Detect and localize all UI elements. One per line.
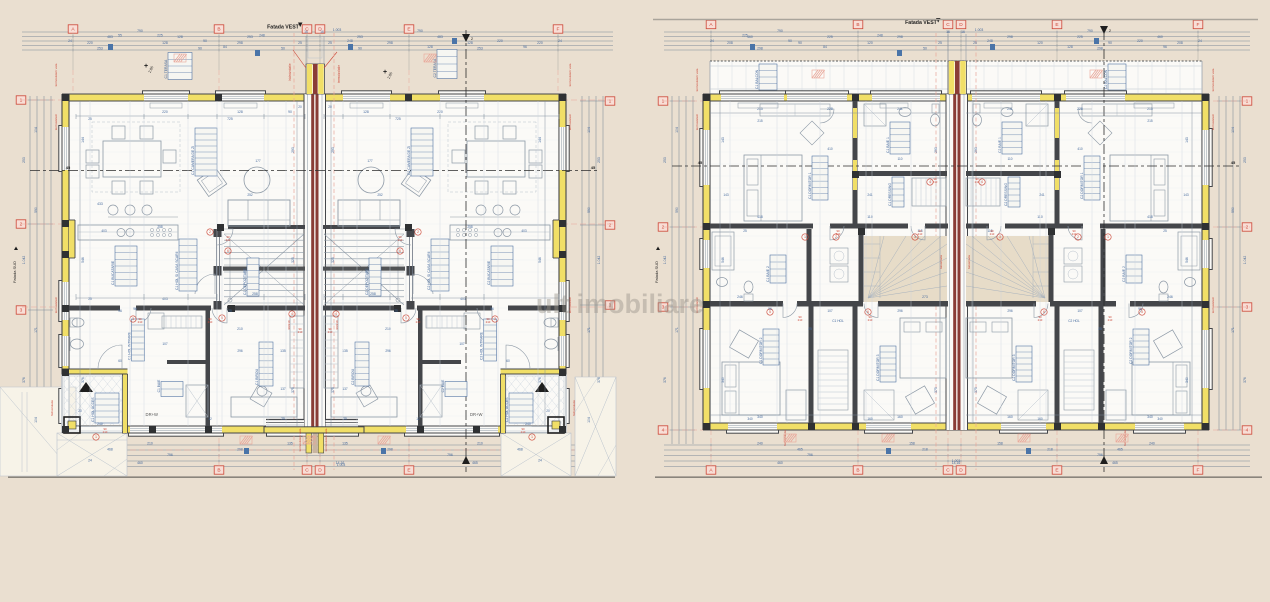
svg-text:376: 376 [663,377,667,383]
svg-text:20: 20 [546,409,550,413]
svg-text:375: 375 [331,387,335,393]
svg-text:418: 418 [1147,215,1153,219]
svg-text:C2 DORMITOR 3: C2 DORMITOR 3 [1012,354,1016,381]
svg-text:210: 210 [975,180,980,184]
svg-text:225: 225 [742,34,748,38]
svg-text:1.042: 1.042 [22,256,26,265]
svg-text:25: 25 [88,297,92,301]
svg-text:210: 210 [918,232,923,236]
svg-text:termosistem vata: termosistem vata [695,68,699,91]
svg-text:340: 340 [1157,417,1163,421]
svg-text:796: 796 [447,453,453,457]
svg-text:210: 210 [477,442,483,446]
svg-text:1.042: 1.042 [1243,256,1247,265]
svg-text:220: 220 [537,41,543,45]
svg-text:225: 225 [1077,35,1083,39]
svg-text:293: 293 [291,147,295,153]
svg-text:210: 210 [147,442,153,446]
svg-text:253: 253 [97,47,103,51]
svg-text:25: 25 [1098,327,1102,331]
svg-text:hidroizolatie: hidroizolatie [783,430,787,446]
svg-text:6: 6 [227,249,229,253]
svg-text:210: 210 [836,232,841,236]
svg-text:158: 158 [909,442,915,446]
svg-text:90: 90 [788,39,792,43]
svg-text:128: 128 [237,110,243,114]
svg-text:84: 84 [823,45,827,49]
svg-text:C2 HOL: C2 HOL [1068,319,1080,323]
svg-text:2: 2 [1077,235,1079,239]
svg-text:376: 376 [597,377,601,383]
svg-text:590: 590 [587,207,591,213]
svg-text:C2 HOL INTRARE: C2 HOL INTRARE [479,331,483,360]
svg-text:25: 25 [938,41,942,45]
svg-text:215: 215 [757,107,763,111]
svg-text:210: 210 [1108,318,1113,322]
svg-text:90: 90 [358,47,362,51]
svg-text:135: 135 [342,442,348,446]
svg-text:546: 546 [721,257,725,263]
svg-text:210: 210 [398,238,403,242]
svg-text:465: 465 [472,461,478,465]
svg-text:107: 107 [459,342,465,346]
svg-text:460: 460 [777,461,783,465]
svg-text:293: 293 [974,147,978,153]
svg-text:hidroizolatie: hidroizolatie [50,400,54,416]
svg-text:376: 376 [22,377,26,383]
svg-text:104: 104 [587,127,591,133]
svg-text:137: 137 [280,387,286,391]
svg-text:465: 465 [1112,461,1118,465]
svg-text:termosistem: termosistem [54,113,58,130]
svg-text:468: 468 [517,448,523,452]
svg-text:375: 375 [934,387,938,393]
svg-text:143: 143 [721,137,725,143]
svg-text:6: 6 [1043,310,1045,314]
svg-text:24: 24 [68,39,72,43]
svg-text:253: 253 [477,47,483,51]
svg-text:340: 340 [1147,415,1153,419]
svg-text:128: 128 [162,41,168,45]
svg-text:14,16: 14,16 [952,461,961,465]
svg-text:128: 128 [467,41,473,45]
svg-text:210: 210 [521,430,526,434]
svg-text:C1 BIROU: C1 BIROU [255,368,259,385]
svg-text:90: 90 [1108,41,1112,45]
svg-text:128: 128 [1067,45,1073,49]
svg-text:C1 HOL INTRARE: C1 HOL INTRARE [127,331,131,360]
svg-text:F: F [1197,468,1200,474]
svg-text:253: 253 [1243,157,1247,163]
svg-text:258: 258 [157,225,163,229]
svg-text:F: F [1197,22,1200,28]
svg-text:96: 96 [523,45,527,49]
svg-text:298: 298 [1007,35,1013,39]
svg-text:215: 215 [1147,107,1153,111]
svg-text:2: 2 [417,230,419,234]
svg-text:158: 158 [997,442,1003,446]
svg-text:C1 TERASA: C1 TERASA [164,59,168,79]
svg-text:228: 228 [1077,107,1083,111]
svg-text:253: 253 [357,35,363,39]
svg-text:C1 HOL ACCES: C1 HOL ACCES [91,397,95,422]
svg-text:termosistem: termosistem [1211,296,1215,313]
svg-text:253: 253 [597,157,601,163]
svg-text:210: 210 [486,320,491,324]
svg-text:143: 143 [1183,193,1189,197]
svg-text:143: 143 [723,193,729,197]
svg-text:B: B [217,27,220,33]
svg-text:balustrada: balustrada [967,255,971,269]
svg-text:25: 25 [973,41,977,45]
svg-text:171: 171 [587,327,591,333]
svg-text:120: 120 [867,41,873,45]
svg-text:1: 1 [609,99,612,105]
svg-text:1: 1 [804,235,806,239]
svg-text:C1 BALCON: C1 BALCON [755,69,759,89]
svg-text:C1 BUCATARIE: C1 BUCATARIE [111,260,115,285]
svg-text:6: 6 [867,310,869,314]
svg-text:298: 298 [1097,47,1103,51]
svg-text:590: 590 [34,207,38,213]
svg-text:45: 45 [66,165,71,170]
svg-text:160: 160 [1007,415,1013,419]
svg-text:96: 96 [118,309,122,313]
svg-text:128: 128 [363,110,369,114]
svg-text:210: 210 [990,232,995,236]
svg-text:C2 BIROU: C2 BIROU [351,368,355,385]
svg-text:4: 4 [929,180,931,184]
svg-text:1.003: 1.003 [975,28,984,32]
svg-text:218: 218 [1047,448,1053,452]
svg-text:C1 DORMITOR 3: C1 DORMITOR 3 [876,354,880,381]
svg-text:403: 403 [162,297,168,301]
svg-text:796: 796 [167,453,173,457]
svg-text:termosistem: termosistem [568,113,572,130]
svg-text:1.042: 1.042 [597,256,601,265]
svg-text:546: 546 [81,257,85,263]
svg-text:465: 465 [797,448,803,452]
svg-text:210: 210 [103,430,108,434]
svg-text:C1 DORMITOR 2: C1 DORMITOR 2 [759,337,763,364]
svg-text:3: 3 [20,308,23,314]
svg-text:16: 16 [304,30,308,34]
svg-text:298: 298 [387,448,393,452]
svg-text:248: 248 [259,34,265,38]
svg-text:84: 84 [223,45,227,49]
svg-text:2: 2 [209,230,211,234]
svg-text:546: 546 [538,257,542,263]
svg-text:483: 483 [107,35,113,39]
svg-text:465: 465 [1117,448,1123,452]
svg-text:468: 468 [107,448,113,452]
svg-text:C1 BAIE 1: C1 BAIE 1 [886,137,890,153]
svg-text:+: + [383,69,387,76]
svg-text:96: 96 [768,307,772,311]
svg-text:403: 403 [101,229,107,233]
svg-text:177: 177 [367,159,373,163]
svg-text:DR+W: DR+W [146,412,158,417]
svg-text:25: 25 [808,327,812,331]
svg-text:246: 246 [1167,295,1173,299]
svg-text:balustrada: balustrada [939,255,943,269]
svg-text:C1 BAIE 2: C1 BAIE 2 [766,266,770,282]
svg-text:C: C [946,22,950,28]
svg-text:460: 460 [137,461,143,465]
svg-text:340: 340 [747,417,753,421]
svg-text:termosistem: termosistem [695,113,699,130]
svg-text:45: 45 [1231,160,1236,165]
svg-text:45: 45 [698,160,703,165]
svg-text:24: 24 [710,39,714,43]
svg-text:50: 50 [923,47,927,51]
svg-text:210: 210 [798,318,803,322]
svg-text:252: 252 [377,193,383,197]
svg-text:246: 246 [737,295,743,299]
svg-text:128: 128 [427,45,433,49]
svg-text:E: E [407,468,410,474]
svg-text:E: E [407,27,410,33]
svg-text:298: 298 [897,35,903,39]
svg-text:25: 25 [328,41,332,45]
svg-text:E: E [1055,22,1058,28]
svg-text:135: 135 [280,349,286,353]
svg-text:248: 248 [347,39,353,43]
svg-text:483: 483 [437,35,443,39]
svg-text:1: 1 [95,435,97,439]
svg-text:ult imobiliare: ult imobiliare [536,289,704,319]
svg-text:107: 107 [827,309,833,313]
svg-text:+: + [144,63,148,70]
svg-text:C1 HOL SI CASA SCARII: C1 HOL SI CASA SCARII [175,251,179,290]
svg-text:107: 107 [162,342,168,346]
svg-text:1: 1 [662,99,665,105]
svg-text:240: 240 [97,422,103,426]
svg-text:258: 258 [252,292,258,296]
svg-text:433: 433 [97,202,103,206]
svg-text:104: 104 [675,127,679,133]
svg-text:96: 96 [1163,45,1167,49]
svg-text:C2 BAIE: C2 BAIE [441,379,445,392]
svg-text:C2 HOL SI CASA SCARII: C2 HOL SI CASA SCARII [427,251,431,290]
svg-text:termosistem vata: termosistem vata [324,428,328,451]
svg-text:Fatada VEST: Fatada VEST [905,20,938,26]
svg-text:90: 90 [288,110,292,114]
svg-text:C: C [946,468,950,474]
svg-text:248: 248 [987,39,993,43]
svg-text:2: 2 [20,222,23,228]
svg-text:144: 144 [538,137,542,143]
svg-text:546: 546 [1185,257,1189,263]
svg-text:3: 3 [1246,305,1249,311]
svg-text:C1 DRESSING: C1 DRESSING [888,183,892,206]
svg-text:208: 208 [727,41,733,45]
svg-text:4: 4 [291,312,293,316]
svg-text:96: 96 [490,307,494,311]
svg-text:296: 296 [1007,309,1013,313]
svg-text:C2 DORMITOR 1: C2 DORMITOR 1 [1080,172,1084,199]
svg-text:252: 252 [247,193,253,197]
svg-text:C2 DRESSING: C2 DRESSING [1004,183,1008,206]
svg-text:220: 220 [497,39,503,43]
svg-text:2: 2 [609,223,612,229]
svg-text:210: 210 [416,320,421,324]
svg-text:210: 210 [1072,232,1077,236]
svg-text:220: 220 [87,41,93,45]
svg-text:104: 104 [587,417,591,423]
svg-text:1: 1 [20,98,23,104]
svg-text:termosistem: termosistem [54,296,58,313]
svg-text:1: 1 [1246,99,1249,105]
svg-text:258: 258 [467,225,473,229]
svg-text:240: 240 [757,442,763,446]
svg-text:1: 1 [531,435,533,439]
svg-text:1.042: 1.042 [663,256,667,265]
svg-text:210: 210 [933,180,938,184]
svg-text:375: 375 [974,387,978,393]
svg-text:20: 20 [328,105,332,109]
svg-text:C2 BAIE 2: C2 BAIE 2 [1122,266,1126,282]
svg-text:25: 25 [298,41,302,45]
svg-text:171: 171 [34,327,38,333]
svg-text:25: 25 [743,229,747,233]
svg-text:460: 460 [1157,35,1163,39]
svg-text:340: 340 [757,415,763,419]
svg-text:143: 143 [1185,137,1189,143]
svg-text:1: 1 [1107,235,1109,239]
svg-text:25: 25 [1163,229,1167,233]
svg-text:796: 796 [807,453,813,457]
svg-text:C2 CAMERA DE ZI: C2 CAMERA DE ZI [407,146,411,175]
svg-text:210: 210 [138,320,143,324]
svg-text:12: 12 [208,417,212,421]
svg-text:29: 29 [343,417,347,421]
svg-text:403: 403 [521,229,527,233]
svg-text:790: 790 [1087,29,1093,33]
svg-text:D: D [959,22,963,28]
svg-text:D: D [959,468,963,474]
svg-text:210: 210 [298,330,303,334]
svg-text:298: 298 [387,41,393,45]
svg-text:220: 220 [162,110,168,114]
svg-text:55: 55 [118,34,122,38]
svg-text:90/210: 90/210 [335,320,339,330]
svg-text:C2 BUCATARIE: C2 BUCATARIE [487,260,491,285]
svg-text:241: 241 [867,193,873,197]
svg-text:90: 90 [203,39,207,43]
svg-text:298: 298 [757,47,763,51]
svg-text:225: 225 [157,34,163,38]
svg-text:460: 460 [747,35,753,39]
svg-text:25: 25 [394,309,398,313]
svg-text:110: 110 [897,157,902,161]
svg-text:296: 296 [385,349,391,353]
svg-text:3: 3 [914,235,916,239]
svg-text:410: 410 [827,147,833,151]
svg-text:C2 DEPOZITARE: C2 DEPOZITARE [365,268,369,295]
svg-text:2: 2 [1246,225,1249,231]
svg-text:termosistem: termosistem [1211,113,1215,130]
svg-text:Fatada SUD: Fatada SUD [12,261,17,283]
svg-text:248: 248 [877,34,883,38]
svg-text:160: 160 [867,417,873,421]
svg-text:376: 376 [81,377,85,383]
svg-text:208: 208 [1177,41,1183,45]
svg-text:218: 218 [922,448,928,452]
svg-text:258: 258 [370,292,376,296]
svg-text:160: 160 [1037,417,1043,421]
svg-text:hidroizolatie: hidroizolatie [572,400,576,416]
svg-text:253: 253 [22,157,26,163]
svg-text:110: 110 [1007,157,1012,161]
svg-text:24: 24 [558,39,562,43]
svg-text:3: 3 [494,317,496,321]
svg-text:96: 96 [1138,307,1142,311]
svg-text:293: 293 [331,147,335,153]
svg-text:3: 3 [132,317,134,321]
svg-text:20: 20 [298,105,302,109]
svg-text:296: 296 [237,349,243,353]
svg-text:107: 107 [1077,309,1083,313]
svg-text:293: 293 [934,147,938,153]
svg-text:210: 210 [1038,318,1043,322]
svg-text:4: 4 [662,428,665,434]
svg-text:50: 50 [281,47,285,51]
svg-text:termosistem vata: termosistem vata [568,63,572,86]
svg-text:171: 171 [675,327,679,333]
svg-text:60: 60 [506,359,510,363]
svg-text:104: 104 [34,417,38,423]
svg-text:12: 12 [416,417,420,421]
svg-text:376: 376 [1243,377,1247,383]
svg-text:104: 104 [34,127,38,133]
svg-text:418: 418 [757,215,763,219]
svg-text:2: 2 [662,225,665,231]
svg-text:4: 4 [335,312,337,316]
svg-text:228: 228 [827,107,833,111]
svg-text:298: 298 [237,41,243,45]
svg-text:590: 590 [675,207,679,213]
svg-text:376: 376 [538,377,542,383]
svg-text:C1 CAMERA DE ZI: C1 CAMERA DE ZI [191,146,195,175]
svg-text:45: 45 [591,165,596,170]
svg-text:241: 241 [897,107,903,111]
svg-text:C1 DEPOZITARE: C1 DEPOZITARE [243,268,247,295]
svg-text:725: 725 [227,117,233,121]
svg-text:16: 16 [320,30,324,34]
svg-text:160: 160 [897,415,903,419]
svg-text:C1 DORMITOR 1: C1 DORMITOR 1 [808,172,812,199]
svg-text:253: 253 [663,157,667,163]
svg-text:240: 240 [525,422,531,426]
svg-text:16: 16 [961,30,965,34]
svg-text:termosistem vata: termosistem vata [1211,68,1215,91]
svg-text:340: 340 [721,377,725,383]
svg-text:253: 253 [247,35,253,39]
svg-text:termosistem vata: termosistem vata [54,63,58,86]
svg-text:403: 403 [460,297,466,301]
svg-text:24: 24 [1198,39,1202,43]
svg-text:215: 215 [757,119,763,123]
svg-text:90/210: 90/210 [287,320,291,330]
svg-text:410: 410 [1077,147,1083,151]
svg-text:C1 BAIE: C1 BAIE [157,379,161,392]
svg-text:128: 128 [177,35,183,39]
svg-text:25: 25 [228,309,232,313]
svg-text:1.003: 1.003 [333,28,342,32]
svg-text:B: B [856,468,859,474]
svg-text:241: 241 [1039,193,1045,197]
